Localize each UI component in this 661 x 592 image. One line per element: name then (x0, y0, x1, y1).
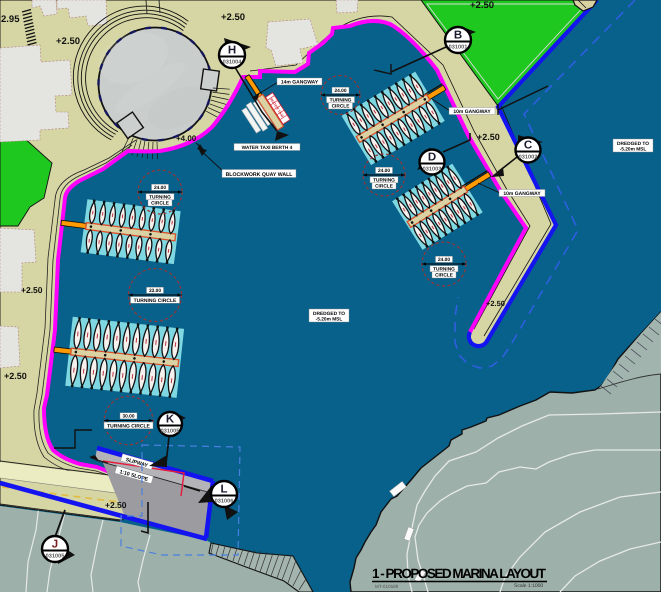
svg-text:031005: 031005 (46, 554, 65, 560)
svg-text:CIRCLE: CIRCLE (435, 273, 454, 279)
svg-text:+4.00: +4.00 (176, 134, 197, 143)
svg-text:24.00: 24.00 (378, 168, 390, 174)
svg-text:+2.50: +2.50 (221, 12, 245, 23)
svg-text:30.00: 30.00 (122, 414, 134, 420)
svg-text:TURNING CIRCLE: TURNING CIRCLE (107, 423, 150, 429)
svg-text:031004: 031004 (223, 60, 243, 66)
svg-text:TURNING: TURNING (330, 97, 352, 103)
svg-text:+2.50: +2.50 (486, 299, 505, 308)
svg-text:Scale 1:1000: Scale 1:1000 (514, 583, 543, 589)
svg-text:CIRCLE: CIRCLE (332, 104, 351, 110)
svg-text:+2.50: +2.50 (470, 0, 494, 11)
svg-text:C: C (524, 140, 532, 152)
svg-text:CIRCLE: CIRCLE (375, 184, 394, 190)
svg-text:+2.50: +2.50 (477, 132, 500, 142)
svg-text:031003: 031003 (423, 167, 442, 173)
svg-text:031005: 031005 (161, 429, 180, 435)
svg-text:+2.50: +2.50 (56, 36, 80, 47)
svg-text:1 - PROPOSED MARINA LAYOUT: 1 - PROPOSED MARINA LAYOUT (372, 566, 547, 581)
svg-text:24.00: 24.00 (438, 257, 450, 263)
svg-text:031002: 031002 (519, 155, 538, 161)
svg-text:CIRCLE: CIRCLE (151, 201, 170, 207)
svg-text:031001: 031001 (449, 45, 468, 51)
svg-text:+2.50: +2.50 (105, 500, 127, 510)
svg-text:DREDGED TO: DREDGED TO (313, 311, 345, 317)
svg-text:2.95: 2.95 (1, 14, 20, 25)
svg-text:K: K (166, 414, 175, 426)
svg-text:DREDGED TO: DREDGED TO (617, 141, 649, 147)
svg-text:TURNING CIRCLE: TURNING CIRCLE (134, 298, 177, 304)
svg-text:B: B (454, 30, 462, 42)
svg-text:10m GANGWAY: 10m GANGWAY (503, 191, 541, 197)
svg-text:+2.50: +2.50 (21, 285, 43, 295)
svg-text:-5.20m MSL: -5.20m MSL (620, 147, 647, 153)
svg-text:TURNING: TURNING (149, 194, 171, 200)
svg-text:24.00: 24.00 (154, 185, 166, 191)
svg-text:24.00: 24.00 (334, 88, 346, 94)
svg-text:D: D (428, 152, 436, 164)
svg-text:031006: 031006 (215, 499, 234, 505)
svg-text:L: L (220, 484, 227, 496)
svg-text:H: H (228, 45, 236, 57)
svg-text:J: J (52, 539, 58, 551)
svg-text:BLOCKWORK QUAY WALL: BLOCKWORK QUAY WALL (226, 172, 294, 178)
svg-text:+2.50: +2.50 (4, 371, 27, 381)
svg-text:33.00: 33.00 (149, 288, 161, 294)
svg-text:WATER TAXI BERTH 4: WATER TAXI BERTH 4 (242, 145, 293, 151)
svg-text:-5.20m MSL: -5.20m MSL (316, 317, 343, 323)
svg-text:TURNING: TURNING (373, 177, 395, 183)
svg-text:MT-010588: MT-010588 (375, 584, 399, 589)
svg-text:TURNING: TURNING (433, 266, 455, 272)
svg-text:14m GANGWAY: 14m GANGWAY (281, 80, 319, 86)
svg-text:10m GANGWAY: 10m GANGWAY (453, 109, 491, 115)
